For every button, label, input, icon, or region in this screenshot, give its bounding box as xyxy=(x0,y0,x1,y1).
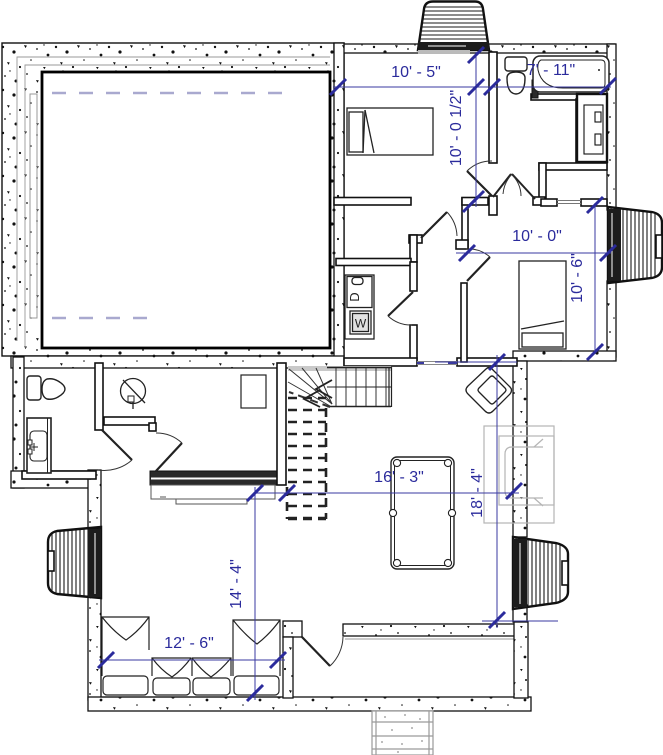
svg-text:W: W xyxy=(355,317,367,331)
svg-text:10' - 0": 10' - 0" xyxy=(512,228,562,245)
svg-text:D: D xyxy=(347,292,362,301)
svg-text:10' - 0 1/2": 10' - 0 1/2" xyxy=(448,90,465,166)
svg-text:18' - 4": 18' - 4" xyxy=(469,468,486,518)
svg-text:7' - 11": 7' - 11" xyxy=(527,62,575,79)
svg-text:14' - 4": 14' - 4" xyxy=(228,559,245,609)
svg-text:10' - 6": 10' - 6" xyxy=(569,253,586,303)
svg-text:12' - 6": 12' - 6" xyxy=(164,635,214,652)
svg-text:16' - 3": 16' - 3" xyxy=(374,469,424,486)
svg-text:10' - 5": 10' - 5" xyxy=(391,64,441,81)
